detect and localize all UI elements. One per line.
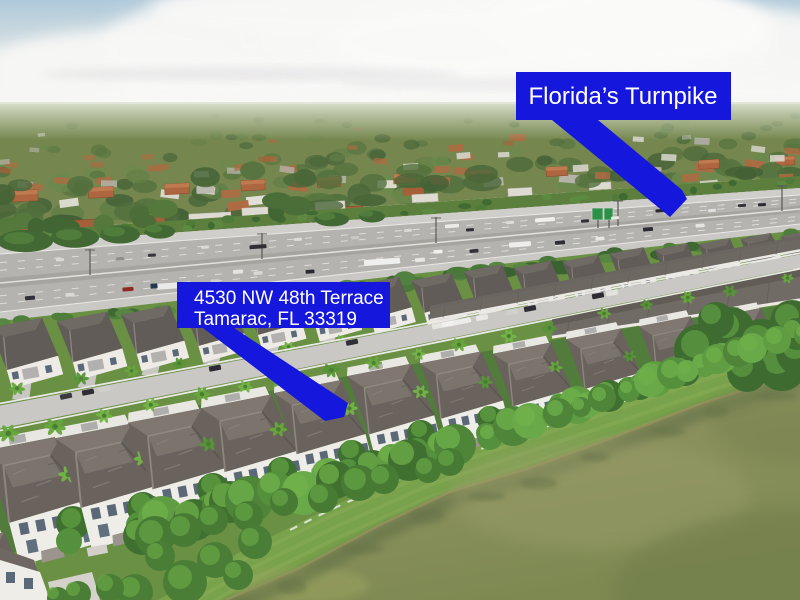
- svg-text:Tamarac, FL 33319: Tamarac, FL 33319: [194, 309, 357, 330]
- svg-text:4530 NW 48th Terrace: 4530 NW 48th Terrace: [194, 288, 384, 309]
- svg-text:Florida’s Turnpike: Florida’s Turnpike: [529, 83, 718, 110]
